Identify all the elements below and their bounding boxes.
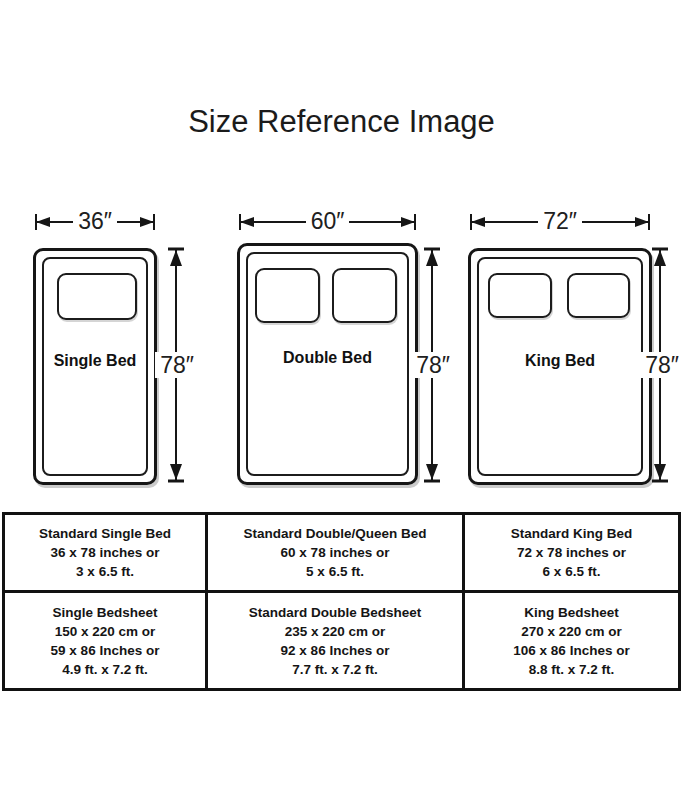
double-bed-width-label: 60″ (237, 208, 418, 234)
table-cell-king-bedsheet: King Bedsheet 270 x 220 cm or 106 x 86 I… (465, 593, 678, 688)
single-bed-pillow (57, 273, 137, 320)
table-cell-standard-king: Standard King Bed 72 x 78 inches or 6 x … (465, 515, 678, 593)
single-bed-height-label: 78″ (154, 352, 200, 378)
double-bed-pillow-left (255, 268, 320, 323)
table-cell-double-bedsheet: Standard Double Bedsheet 235 x 220 cm or… (208, 593, 465, 688)
table-cell-standard-double: Standard Double/Queen Bed 60 x 78 inches… (208, 515, 465, 593)
table-cell-standard-single: Standard Single Bed 36 x 78 inches or 3 … (5, 515, 208, 593)
king-bed-outline: King Bed (468, 248, 652, 485)
double-bed-pillow-right (332, 268, 397, 323)
double-bed-outline: Double Bed (237, 243, 418, 485)
king-bed-label: King Bed (471, 352, 649, 370)
single-bed-width-label: 36″ (33, 208, 157, 234)
double-bed-height-label: 78″ (410, 352, 456, 378)
single-bed-label: Single Bed (36, 352, 154, 370)
king-bed-pillow-right (567, 273, 630, 318)
size-reference-image: Size Reference Image 36″ Single Bed 78″ (0, 0, 683, 800)
king-bed-width-label: 72″ (468, 208, 652, 234)
king-bed-height-label: 78″ (640, 352, 683, 378)
page-title: Size Reference Image (0, 104, 683, 140)
bed-size-table: Standard Single Bed 36 x 78 inches or 3 … (2, 512, 681, 691)
king-bed-pillow-left (488, 273, 552, 318)
table-cell-single-bedsheet: Single Bedsheet 150 x 220 cm or 59 x 86 … (5, 593, 208, 688)
double-bed-label: Double Bed (240, 349, 415, 367)
single-bed-outline: Single Bed (33, 248, 157, 485)
